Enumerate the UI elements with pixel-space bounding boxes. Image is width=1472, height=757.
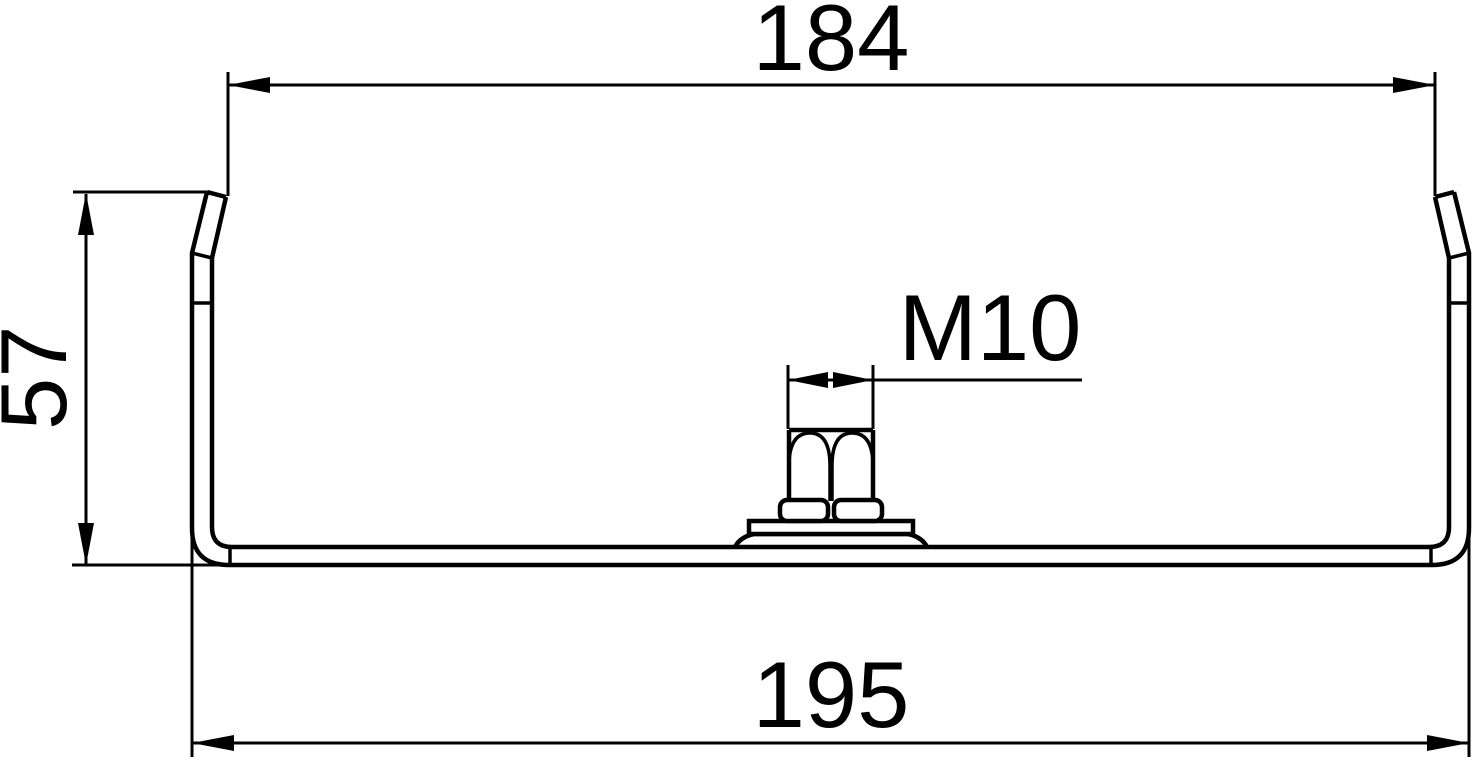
technical-drawing-canvas: 184 57 195 M10	[0, 0, 1472, 757]
arrowhead-57-top	[78, 193, 94, 235]
stud-assembly	[735, 430, 927, 547]
left-lip-cut-edge	[207, 192, 226, 197]
nut-left-half	[780, 500, 828, 521]
right-lip-cut-edge	[1435, 192, 1454, 197]
thread-arch-left	[789, 433, 830, 501]
arrowhead-m10-left	[788, 372, 828, 388]
thread-arch-right	[832, 433, 873, 501]
arrowhead-m10-right	[833, 372, 873, 388]
washer-plate	[749, 521, 913, 534]
channel-profile-drawing: 184 57 195 M10	[0, 0, 1472, 757]
dimension-inner-top-width: 184	[228, 0, 1435, 196]
left-lip-bend-line	[192, 253, 212, 258]
arrowhead-184-left	[228, 77, 270, 93]
arrowhead-195-left	[192, 735, 234, 751]
arrowhead-184-right	[1393, 77, 1435, 93]
dimension-label-outer-bottom-width: 195	[753, 642, 910, 747]
dimension-label-thread: M10	[899, 275, 1082, 380]
dimension-label-height: 57	[0, 325, 86, 430]
dimension-label-inner-top-width: 184	[753, 0, 910, 90]
arrowhead-195-right	[1427, 735, 1469, 751]
arrowhead-57-bottom	[78, 523, 94, 565]
nut-right-half	[834, 500, 882, 521]
right-lip-bend-line	[1449, 253, 1469, 258]
dimension-thread: M10	[788, 275, 1082, 429]
